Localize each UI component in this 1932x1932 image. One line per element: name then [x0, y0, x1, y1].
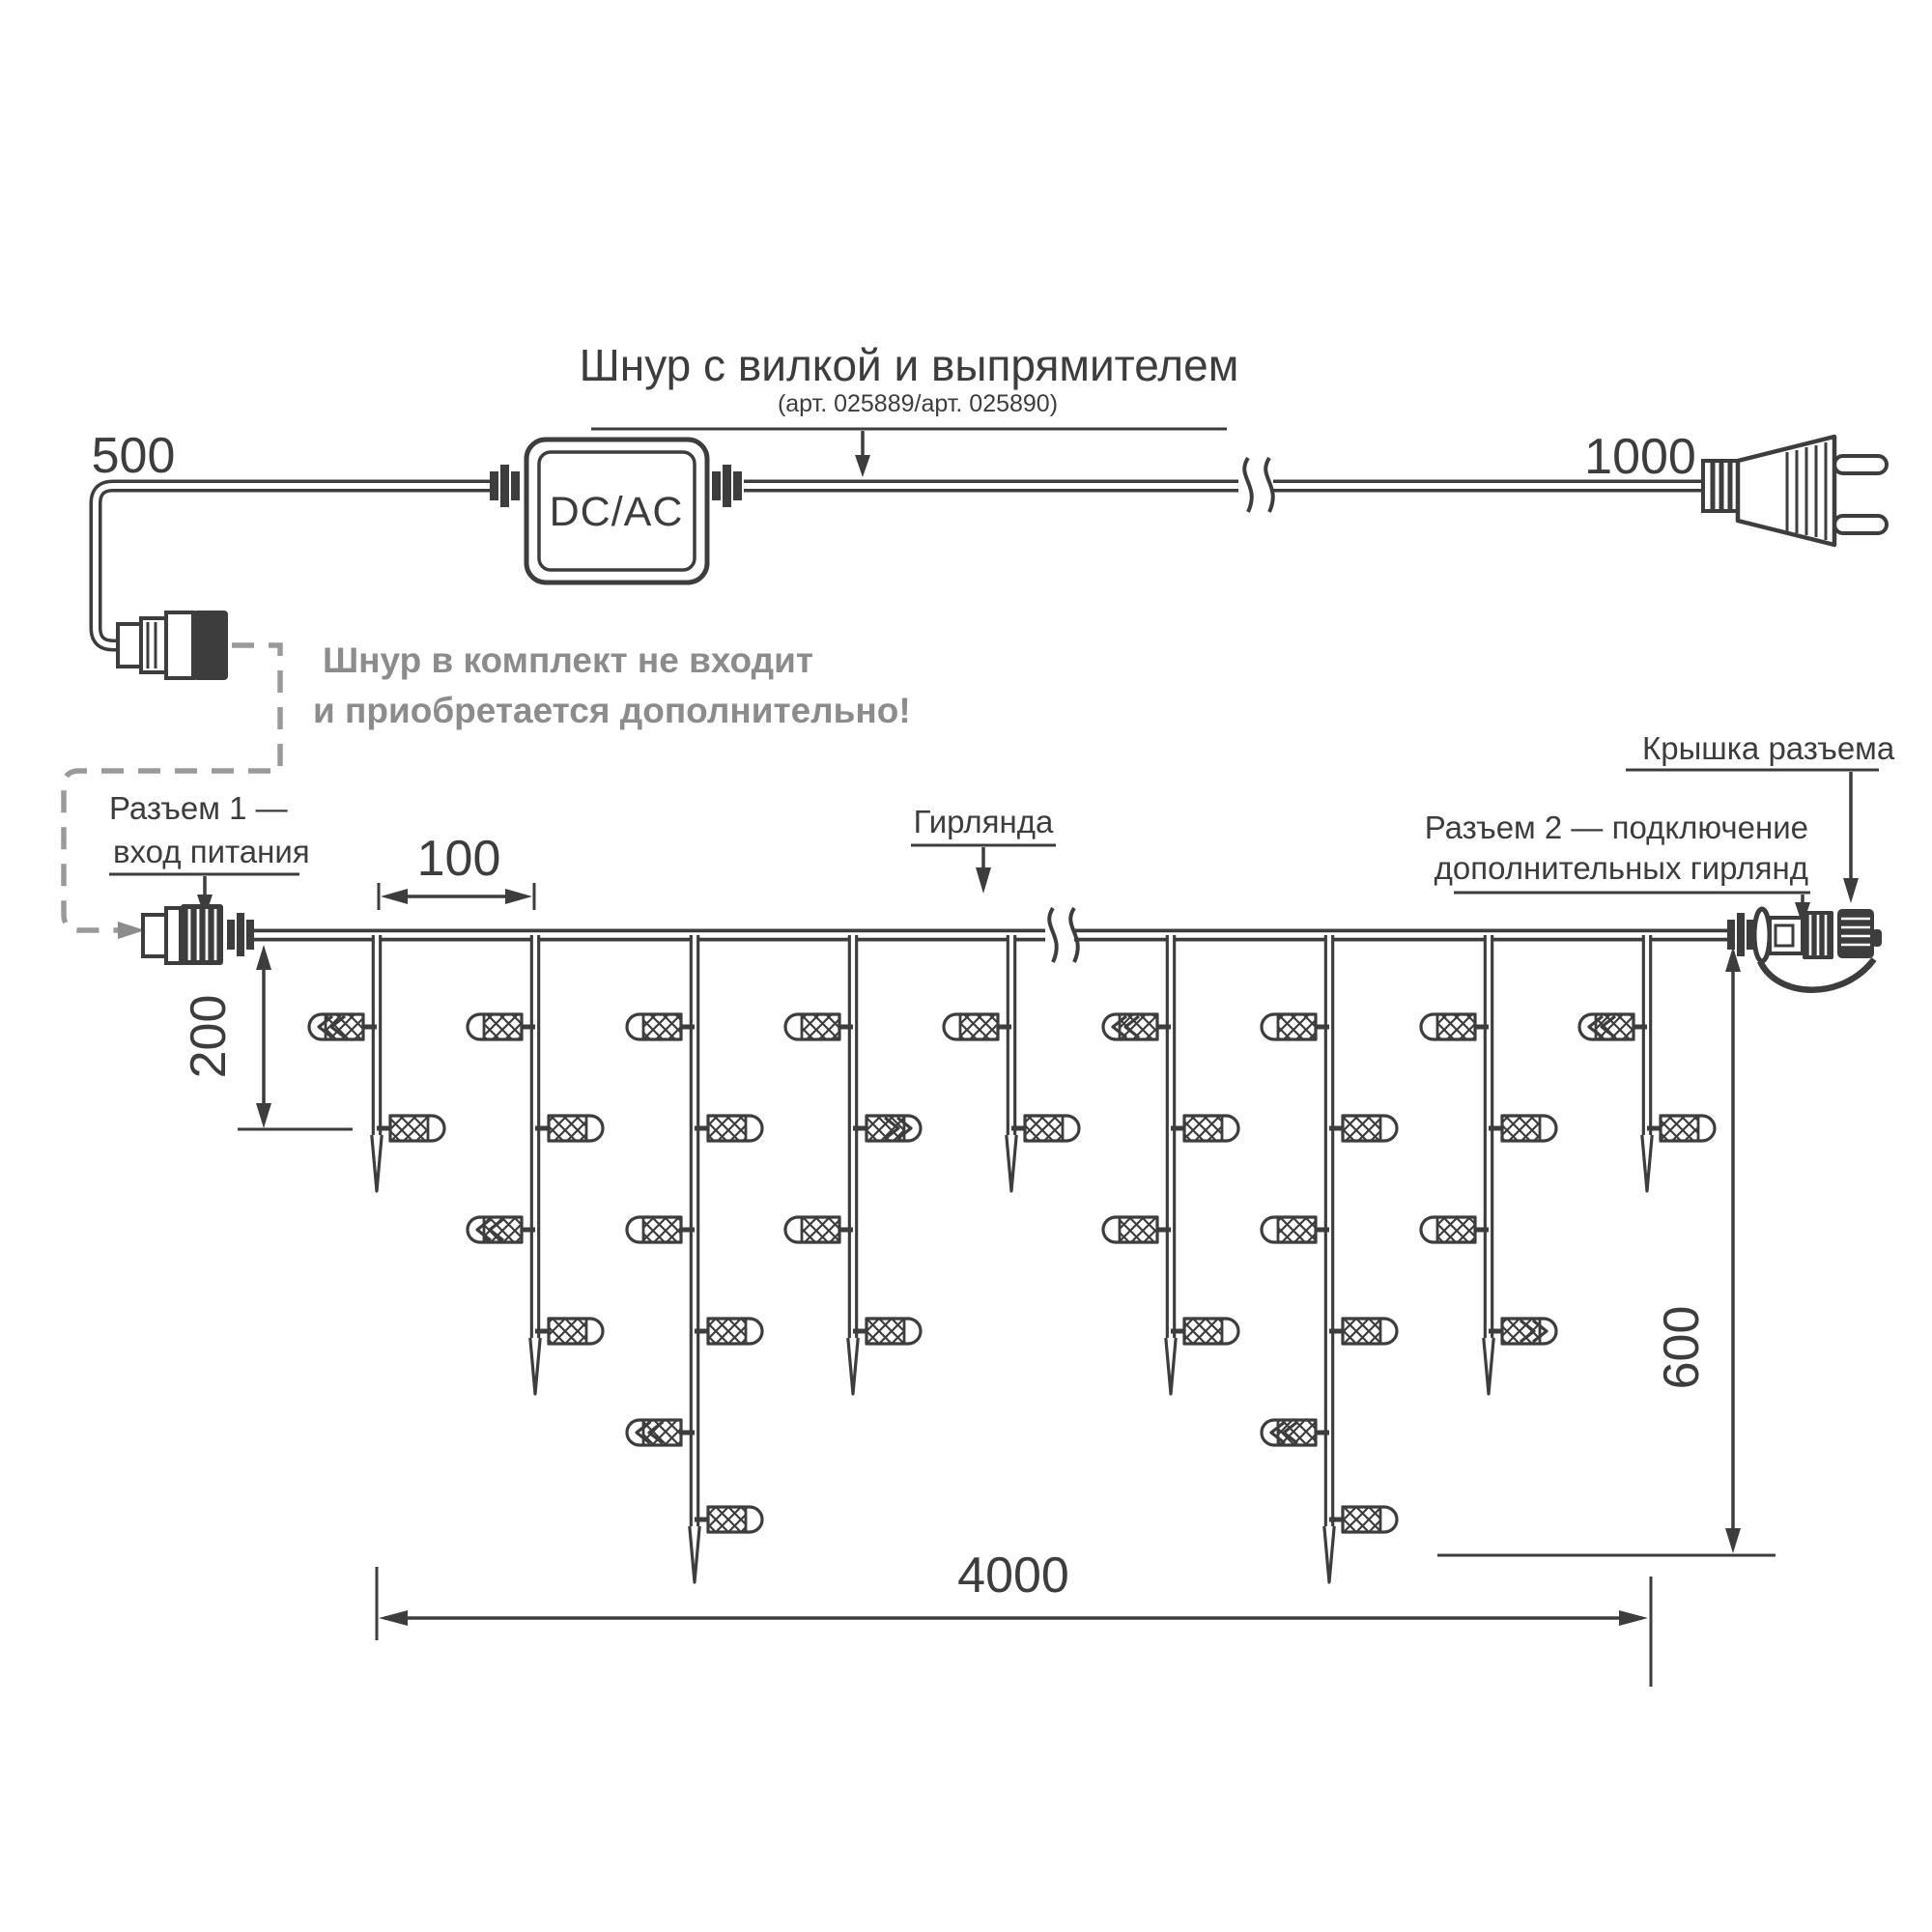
- dim-4000-block: 4000: [377, 1548, 1651, 1687]
- connector1-label-line2: вход питания: [113, 834, 310, 869]
- connector2-label-block: Разъем 2 — подключение дополнительных ги…: [1425, 810, 1810, 925]
- cord-connector-cap: [193, 611, 228, 680]
- connector2-assembly: [1727, 909, 1882, 990]
- garland-arrow-icon: [976, 867, 991, 894]
- cord-subtitle: (арт. 025889/арт. 025890): [778, 390, 1058, 417]
- connector1: [143, 904, 254, 965]
- garland-label-block: Гирлянда: [911, 804, 1056, 894]
- converter-label: DC/AC: [550, 489, 684, 535]
- garland-drop: [1103, 935, 1238, 1394]
- garland-drop: [627, 935, 762, 1582]
- drop-tip: [530, 1338, 540, 1394]
- cord-title-arrow-icon: [855, 455, 870, 477]
- plug-prong-bottom: [1834, 516, 1887, 533]
- connector2-label-line2: дополнительных гирлянд: [1435, 850, 1808, 886]
- garland-drop: [1262, 935, 1397, 1582]
- dim-200-label: 200: [181, 995, 237, 1079]
- cord-wire-right: [744, 458, 1703, 512]
- drop-tip: [1166, 1338, 1176, 1394]
- dim-100-block: 100: [379, 831, 534, 910]
- power-cord-section: Шнур с вилкой и выпрямителем (арт. 02588…: [64, 340, 1887, 939]
- connector1-label-line1: Разъем 1 —: [109, 790, 288, 826]
- connector-cap: [1837, 909, 1882, 958]
- cord-end-connector: [118, 611, 228, 680]
- cap-tether-cord: [1760, 959, 1874, 990]
- drop-tip: [1484, 1338, 1493, 1394]
- garland-section: Разъем 1 — вход питания Гирлянда Крышка …: [109, 730, 1895, 1687]
- garland-drop: [944, 935, 1079, 1191]
- cord-title: Шнур с вилкой и выпрямителем: [580, 340, 1239, 390]
- coupling-right-of-converter: [712, 465, 742, 507]
- cap-label: Крышка разъема: [1642, 730, 1895, 766]
- note-line2: и приобретается дополнительно!: [313, 691, 911, 730]
- dim-100-label: 100: [417, 831, 501, 887]
- drop-tip: [1642, 1135, 1652, 1191]
- tether-ring-icon: [1754, 909, 1770, 961]
- dim-500-label: 500: [92, 428, 176, 484]
- plug-prong-top: [1834, 456, 1887, 473]
- technical-diagram-page: Шнур с вилкой и выпрямителем (арт. 02588…: [0, 0, 1932, 1932]
- garland-drop: [1579, 935, 1715, 1191]
- gray-arrow-icon: [118, 922, 145, 939]
- coupling-left-of-converter: [490, 465, 520, 507]
- dcac-converter-box: DC/AC: [526, 440, 707, 582]
- drop-tip: [690, 1526, 699, 1582]
- connector2-label-line1: Разъем 2 — подключение: [1425, 810, 1808, 845]
- cap-arrow-icon: [1843, 878, 1859, 903]
- garland-drop: [1421, 935, 1556, 1394]
- note-line1: Шнур в комплект не входит: [323, 640, 813, 680]
- dim-1000-label: 1000: [1584, 429, 1696, 485]
- garland-label: Гирлянда: [914, 804, 1054, 839]
- garland-break-icon: [1045, 908, 1078, 962]
- garland-wiring-diagram: Шнур с вилкой и выпрямителем (арт. 02588…: [0, 0, 1932, 1932]
- dim-4000-label: 4000: [957, 1548, 1069, 1604]
- garland-drop: [309, 935, 444, 1191]
- power-plug-icon: [1703, 437, 1887, 545]
- drop-tip: [1324, 1526, 1334, 1582]
- dim-600-label: 600: [1654, 1306, 1710, 1390]
- drop-tip: [1007, 1135, 1016, 1191]
- drop-tip: [372, 1135, 382, 1191]
- garland-drop: [468, 935, 603, 1394]
- drop-tip: [848, 1338, 858, 1394]
- connector1-label-block: Разъем 1 — вход питания: [109, 790, 310, 918]
- garland-drop: [785, 935, 921, 1394]
- icicle-drops: [309, 935, 1715, 1582]
